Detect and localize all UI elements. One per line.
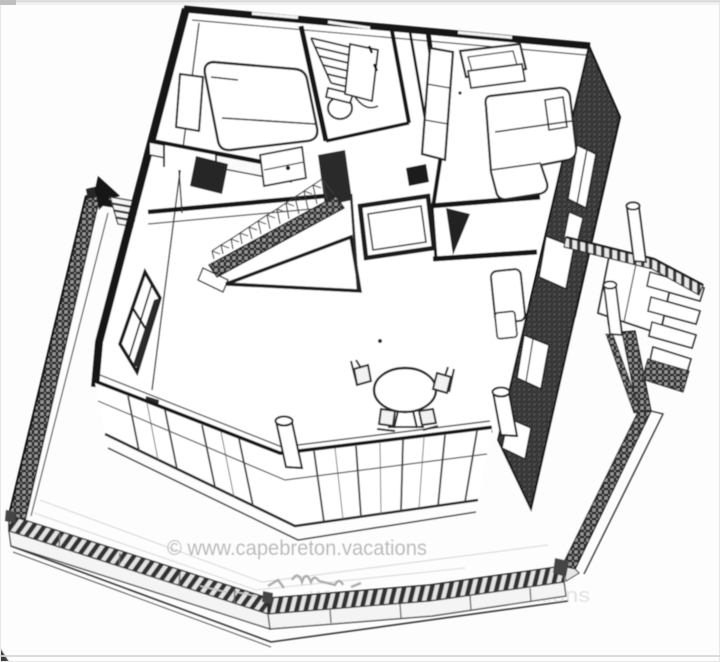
svg-text:© www.capebreton.vacations: © www.capebreton.vacations: [167, 537, 427, 560]
